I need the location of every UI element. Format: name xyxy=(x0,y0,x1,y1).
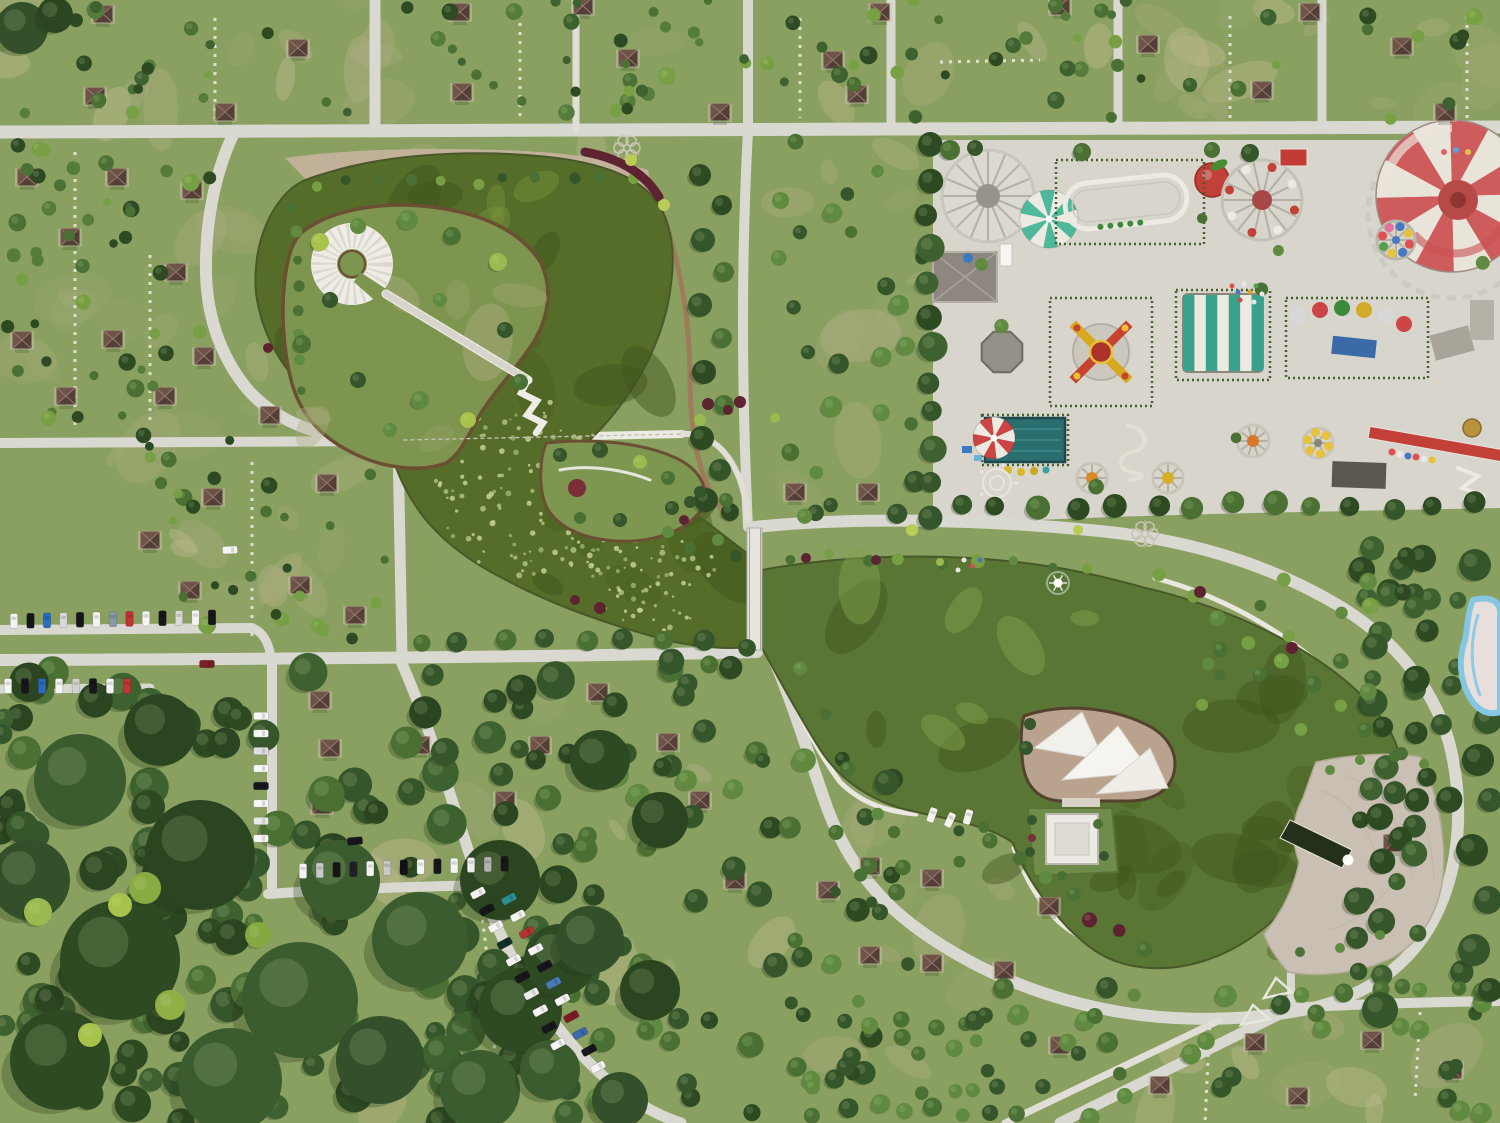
paratrooper-ride xyxy=(1222,160,1302,240)
kiddie-planes-ride xyxy=(1303,428,1333,458)
swing-carousel-ride xyxy=(942,150,1034,242)
kiddie-wheel-ride xyxy=(1377,221,1415,259)
red-white-umbrella xyxy=(973,417,1015,459)
lakeside-building-core xyxy=(1055,823,1089,855)
screenshot-root xyxy=(0,0,1500,1123)
building-garden-bed xyxy=(1028,834,1036,842)
pendulum-ride xyxy=(1070,321,1133,384)
gold-sphere-ride xyxy=(1463,419,1481,437)
white-service-van xyxy=(1000,244,1012,266)
blue-trampoline-b xyxy=(974,455,982,461)
garden-rose-bed xyxy=(568,479,586,497)
striped-show-hall xyxy=(1183,294,1263,372)
gray-structure-b xyxy=(1470,300,1494,340)
octagon-gazebo xyxy=(982,332,1023,373)
kiddie-carousel-b xyxy=(1153,463,1183,493)
dark-roof-structure xyxy=(1332,461,1387,489)
red-kiosk xyxy=(1280,149,1307,166)
kiddie-carousel-c xyxy=(1237,425,1269,457)
aerial-park-photo xyxy=(0,0,1500,1123)
blue-umbrella xyxy=(963,253,973,263)
canal-weir-splash xyxy=(1343,855,1354,866)
blue-trampoline-a xyxy=(962,446,972,453)
